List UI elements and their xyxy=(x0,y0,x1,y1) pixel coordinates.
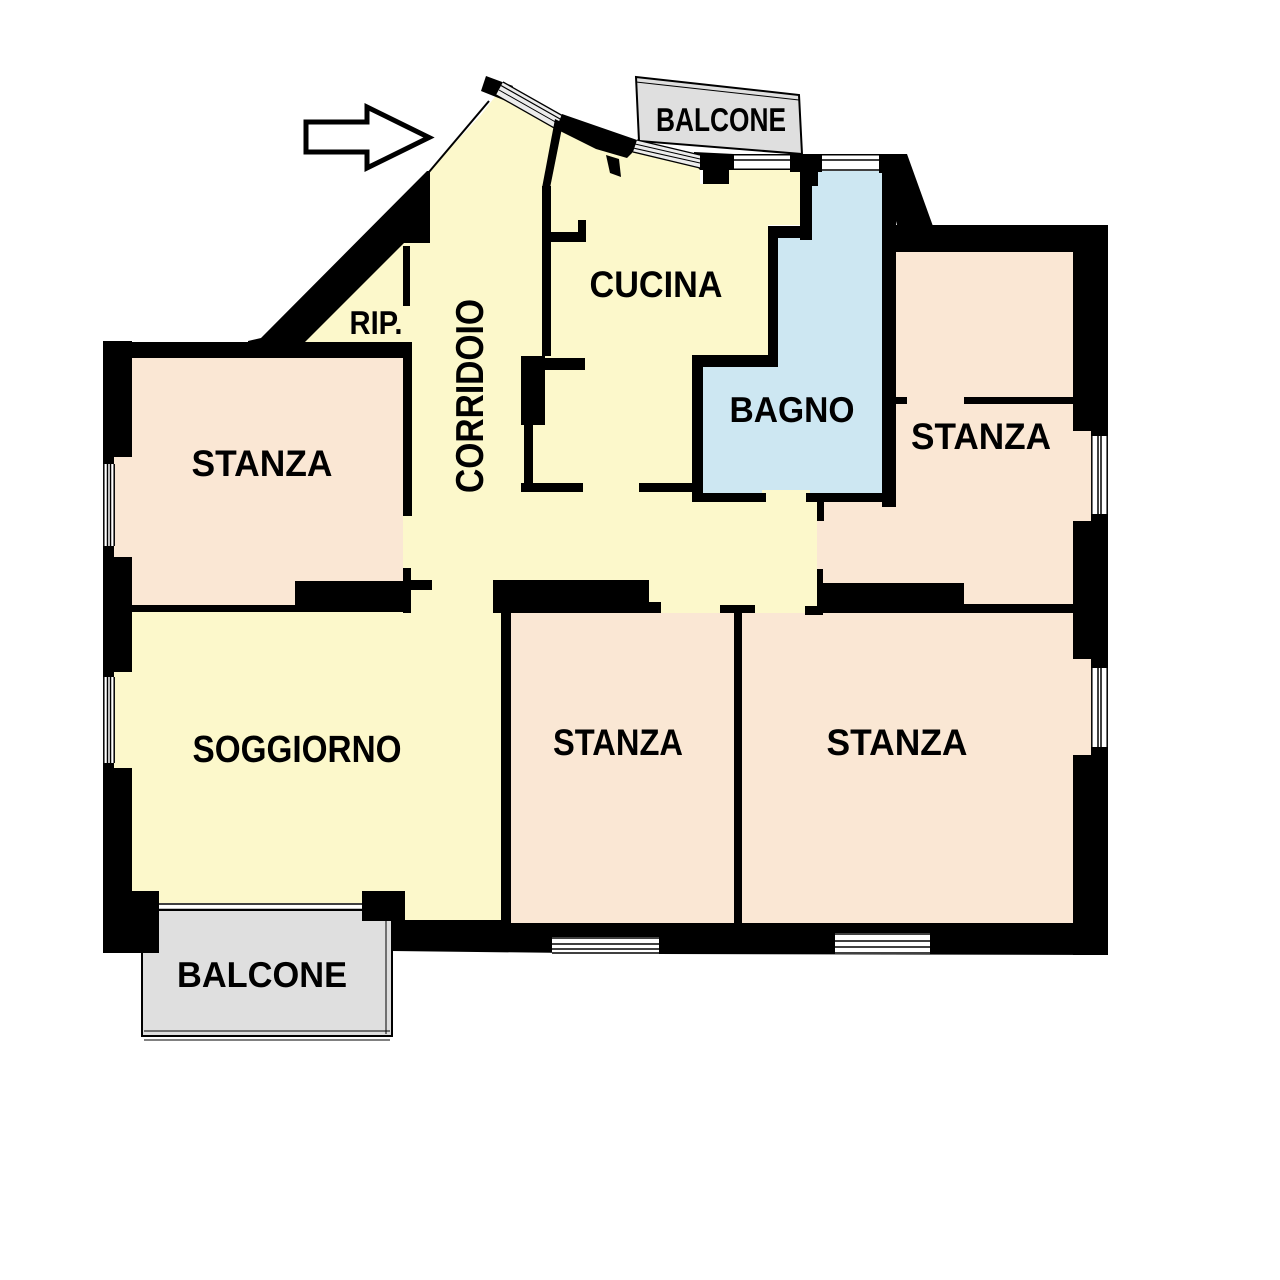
svg-text:STANZA: STANZA xyxy=(827,722,968,763)
svg-text:RIP.: RIP. xyxy=(350,304,403,341)
svg-text:CUCINA: CUCINA xyxy=(590,264,723,305)
svg-text:STANZA: STANZA xyxy=(553,722,683,763)
svg-text:STANZA: STANZA xyxy=(192,443,333,484)
svg-text:STANZA: STANZA xyxy=(911,416,1051,457)
svg-text:CORRIDOIO: CORRIDOIO xyxy=(449,299,492,493)
svg-text:BALCONE: BALCONE xyxy=(656,101,786,138)
svg-text:SOGGIORNO: SOGGIORNO xyxy=(193,729,402,771)
svg-text:BALCONE: BALCONE xyxy=(177,954,347,995)
svg-text:BAGNO: BAGNO xyxy=(730,389,855,430)
